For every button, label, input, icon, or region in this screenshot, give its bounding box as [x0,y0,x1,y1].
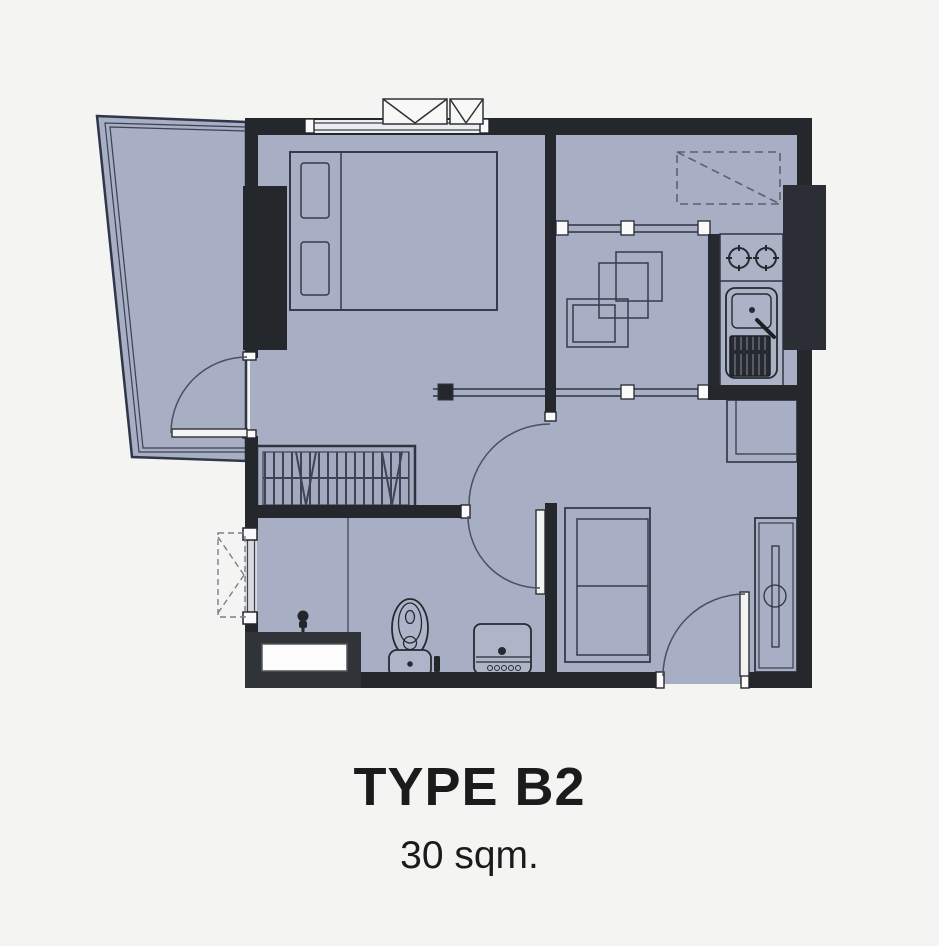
partition-jamb [621,385,634,399]
ac-ledge [783,185,826,350]
wall-bathroom-living [545,503,557,676]
vanity-sink [474,624,531,674]
partition-jamb [621,221,634,235]
vent-window [262,644,347,671]
wall-bathroom-top [245,505,470,518]
floorplan-page: TYPE B2 30 sqm. [0,0,939,946]
wall-right-lower [797,400,812,688]
balcony [97,116,246,461]
door-leaf [536,510,545,594]
wall-kitchen-bottom [708,385,812,400]
window-jamb [243,612,257,624]
casement-window-1 [383,99,447,124]
bathroom-vent-niche [245,632,361,688]
kitchen-counter [708,234,783,387]
toilet-flush-valve [434,656,440,672]
wall-bottom-right [742,672,812,688]
awning-window-dashed [218,533,245,617]
balcony-floor [97,116,246,461]
door-leaf [172,429,247,437]
faucet-icon [498,647,506,655]
door-leaf [740,592,749,676]
unit-floor [250,122,806,684]
wall-left-upper [245,122,258,188]
partition-end-post [438,384,453,400]
wall-bedroom-kitchen [545,122,556,420]
plan-title: TYPE B2 [0,756,939,818]
wall-right-upper [797,122,812,187]
bedroom-windows [305,99,489,133]
kitchen-sink [726,288,777,378]
drain-dot [749,307,755,313]
partition-jamb [556,221,568,235]
shoe-cabinet [755,518,797,672]
plan-area-label: 30 sqm. [0,834,939,878]
column-block [243,186,287,350]
partition-jamb [698,221,710,235]
wardrobe-closet [257,446,415,510]
drainboard [730,336,770,376]
casement-window-2 [450,99,483,124]
window-jamb [305,119,314,133]
